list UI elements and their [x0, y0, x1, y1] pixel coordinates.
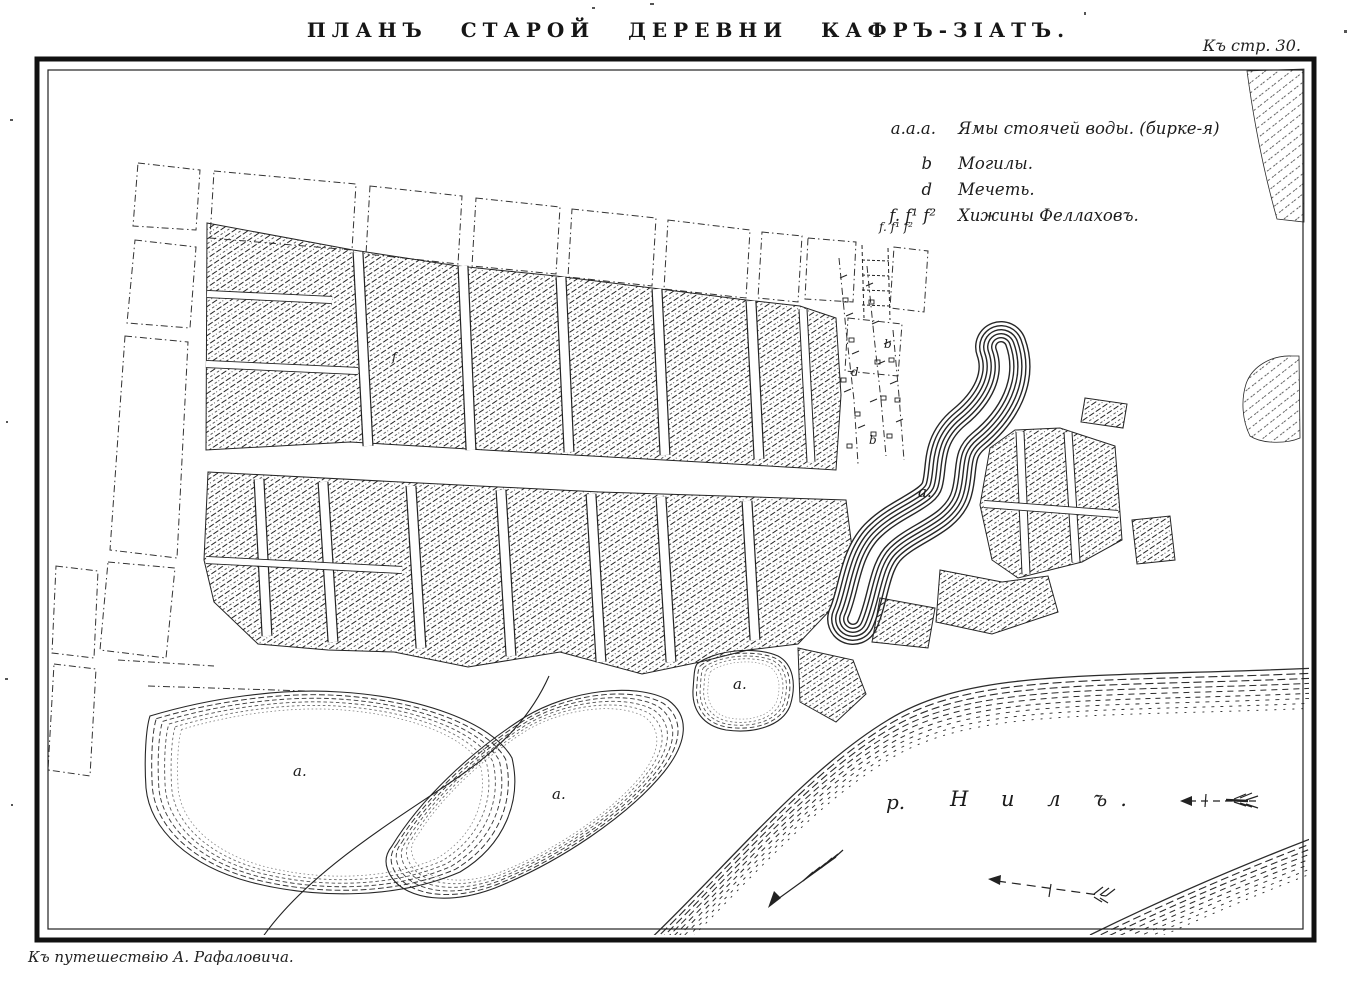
map-content: a. a. a. a. р. Н и л ъ. b d b f. f¹ f² f… — [48, 69, 1318, 987]
legend-label-3: Мечеть. — [957, 180, 1035, 199]
field-parcel — [472, 198, 560, 274]
road-line — [258, 676, 549, 944]
field-parcel — [127, 240, 196, 328]
field-parcel — [52, 566, 98, 658]
field-parcel — [758, 232, 802, 302]
field-parcel — [100, 562, 175, 658]
grave-ticks — [840, 275, 903, 428]
graves-letter: b — [869, 433, 877, 447]
pond-left — [145, 691, 515, 894]
field-parcel — [133, 163, 200, 230]
pond-label: a. — [293, 762, 307, 780]
legend-label-1: Ямы стоячей воды. (бирке-я) — [957, 119, 1220, 138]
village-block — [1132, 516, 1175, 564]
legend-label-2: Могилы. — [957, 154, 1033, 173]
pond-label: a. — [918, 483, 932, 501]
field-parcel — [366, 186, 462, 264]
field-parcel — [48, 664, 96, 776]
village-block — [872, 598, 935, 648]
map-sheet: ПЛАНЪ СТАРОЙ ДЕРЕВНИ КАФРЪ-ЗІАТЪ. Къ стр… — [0, 0, 1353, 1000]
legend-symbol-2: b — [921, 154, 932, 173]
map-canvas: a. a. a. a. р. Н и л ъ. b d b f. f¹ f² f… — [0, 0, 1353, 1000]
field-parcel — [805, 238, 856, 302]
field-parcel — [568, 209, 656, 286]
pond-middle — [386, 690, 683, 898]
graves-letter: b — [884, 337, 892, 351]
field-parcel — [664, 220, 750, 298]
river-label: Н и л ъ. — [949, 787, 1140, 811]
current-arrow-icon — [988, 875, 1115, 903]
field-boundary-line — [148, 686, 306, 691]
field-parcels — [48, 163, 928, 776]
legend: a.a.a. Ямы стоячей воды. (бирке-я) b Мог… — [887, 119, 1219, 225]
shore-blob — [1243, 356, 1300, 442]
village-block — [1081, 398, 1127, 428]
graves-area — [839, 245, 904, 464]
field-boundary-line — [118, 660, 214, 666]
village-block — [798, 648, 866, 722]
field-parcel — [110, 336, 188, 558]
grave-squares — [841, 298, 900, 448]
east-blocks — [980, 398, 1175, 578]
legend-symbol-4: f. f¹ f² — [887, 206, 936, 225]
river-label-abbr: р. — [886, 790, 905, 814]
corner-wedge — [1247, 69, 1304, 222]
village-block — [206, 223, 841, 470]
legend-symbol-1: a.a.a. — [891, 119, 936, 138]
pond-label: a. — [552, 785, 566, 803]
field-parcel — [890, 247, 928, 312]
current-arrow-icon — [768, 850, 843, 908]
legend-label-4: Хижины Феллаховъ. — [956, 206, 1139, 225]
village-block — [936, 570, 1058, 634]
current-arrow-icon — [1180, 793, 1258, 808]
pond-label: a. — [733, 675, 747, 693]
legend-symbol-3: d — [921, 180, 932, 199]
mosque-letter: d — [851, 365, 859, 379]
